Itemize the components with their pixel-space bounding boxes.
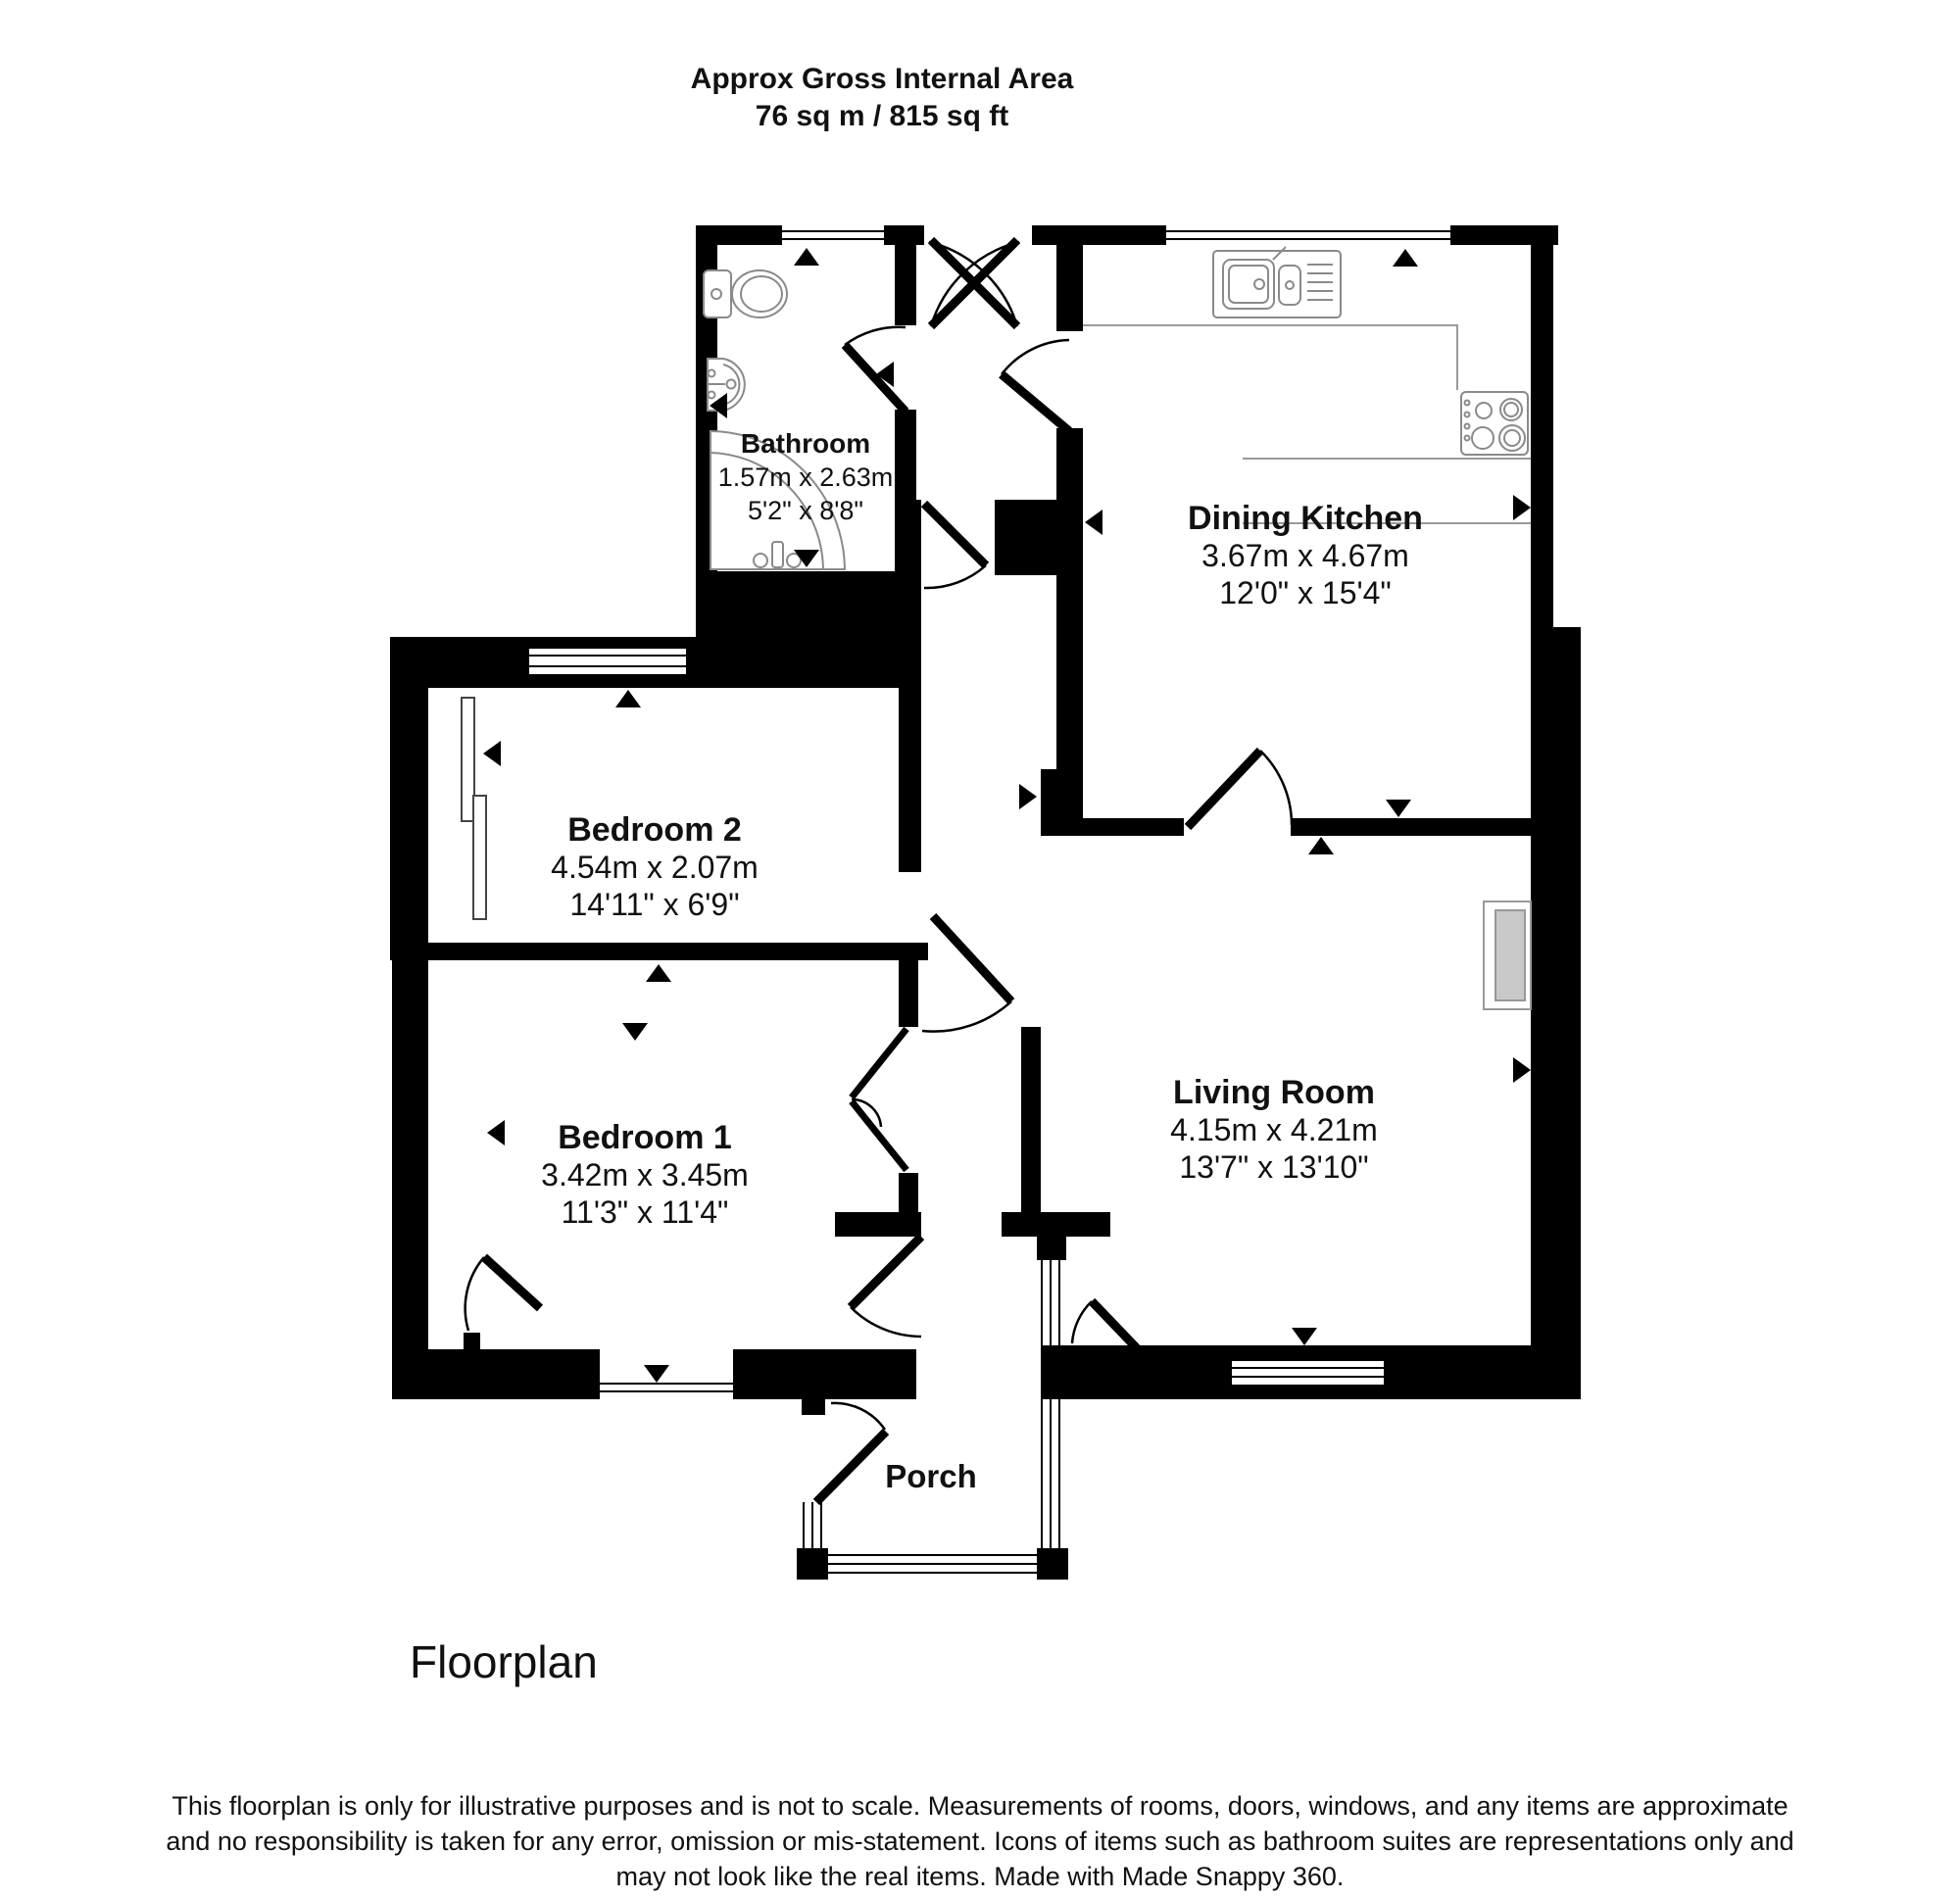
wall (995, 500, 1056, 575)
kitchen-sink-icon (1213, 247, 1341, 317)
wall (392, 1349, 600, 1399)
arrow-up-icon (794, 248, 819, 266)
door-bedroom2 (922, 916, 1011, 1032)
door-bedroom1-corner (465, 1257, 540, 1331)
disclaimer-line: and no responsibility is taken for any e… (166, 1826, 1793, 1856)
room-name: Bedroom 2 (567, 811, 742, 849)
room-dim-metric: 4.54m x 2.07m (551, 850, 759, 885)
window-bedroom2-bay (462, 698, 486, 919)
arrow-up-icon (646, 964, 671, 982)
floorplan-drawing: Approx Gross Internal Area 76 sq m / 815… (0, 0, 1960, 1899)
wall (464, 1333, 480, 1349)
page-title-line2: 76 sq m / 815 sq ft (756, 100, 1008, 132)
floorplan-caption: Floorplan (410, 1636, 598, 1687)
wall (899, 575, 921, 872)
arrow-left-icon (483, 741, 501, 766)
arrow-up-icon (615, 690, 641, 707)
wall (390, 943, 928, 960)
wall (797, 1548, 828, 1580)
room-dim-imperial: 14'11" x 6'9" (569, 887, 739, 922)
porch-glazing-left (804, 1502, 821, 1548)
arrow-right-icon (1019, 784, 1037, 809)
wall (392, 1254, 428, 1352)
disclaimer: This floorplan is only for illustrative … (166, 1791, 1793, 1891)
room-dim-imperial: 11'3" x 11'4" (562, 1194, 729, 1230)
toilet-icon (704, 270, 787, 317)
porch-glazing-bottom (828, 1555, 1037, 1573)
room-name: Bathroom (741, 428, 870, 459)
wall (392, 960, 428, 1254)
wall (802, 1395, 825, 1415)
room-dim-metric: 3.67m x 4.67m (1201, 538, 1409, 573)
room-dim-imperial: 12'0" x 15'4" (1219, 575, 1392, 610)
door-living-room (1188, 751, 1292, 827)
walls (390, 225, 1581, 1580)
door-hallway (924, 504, 986, 588)
wall (1056, 245, 1083, 331)
wall (1083, 818, 1184, 836)
arrow-left-icon (1085, 510, 1102, 535)
arrow-down-icon (622, 1023, 648, 1041)
door-porch-outer-right (1072, 1301, 1137, 1348)
room-dim-metric: 4.15m x 4.21m (1170, 1112, 1378, 1147)
arrow-right-icon (1513, 1057, 1531, 1083)
wall (1291, 818, 1531, 836)
door-front-entrance (929, 240, 1019, 326)
room-dim-metric: 1.57m x 2.63m (718, 463, 894, 492)
room-dim-imperial: 5'2" x 8'8" (748, 496, 863, 525)
arrow-down-icon (1386, 800, 1411, 817)
door-bedroom1-bifold (852, 1029, 906, 1170)
wall (895, 245, 916, 325)
wall (1041, 769, 1083, 836)
disclaimer-line: This floorplan is only for illustrative … (171, 1791, 1788, 1821)
room-name: Living Room (1173, 1074, 1375, 1111)
door-bathroom (845, 327, 906, 412)
wall (899, 960, 918, 1027)
room-name: Porch (885, 1458, 977, 1494)
window-living-room (1232, 1361, 1384, 1385)
wall (1531, 627, 1581, 1345)
room-label-porch: Porch (885, 1458, 977, 1494)
fireplace-icon (1484, 901, 1531, 1009)
window-bathroom (782, 225, 884, 245)
wall (1002, 1212, 1110, 1237)
wall (895, 410, 916, 500)
wall (1531, 225, 1553, 627)
floorplan-page: Approx Gross Internal Area 76 sq m / 815… (0, 0, 1960, 1899)
page-title-line1: Approx Gross Internal Area (691, 63, 1074, 95)
wall (733, 1349, 916, 1399)
wall (835, 1212, 921, 1237)
wall (1056, 428, 1083, 769)
room-dim-imperial: 13'7" x 13'10" (1179, 1149, 1368, 1185)
arrow-left-icon (487, 1120, 505, 1145)
door-kitchen (1002, 340, 1069, 431)
wall (1037, 1548, 1068, 1580)
room-label-living-room: Living Room 4.15m x 4.21m 13'7" x 13'10" (1170, 1074, 1378, 1185)
window-bedroom1 (600, 1377, 733, 1399)
room-dim-metric: 3.42m x 3.45m (541, 1157, 749, 1193)
disclaimer-line: may not look like the real items. Made w… (616, 1862, 1345, 1891)
wall (1021, 1027, 1041, 1212)
door-porch-inner (851, 1237, 921, 1337)
room-label-bedroom2: Bedroom 2 4.54m x 2.07m 14'11" x 6'9" (551, 811, 759, 922)
hob-icon (1461, 392, 1528, 455)
window-kitchen (1166, 225, 1450, 245)
room-label-bedroom1: Bedroom 1 3.42m x 3.45m 11'3" x 11'4" (541, 1119, 749, 1230)
room-label-dining-kitchen: Dining Kitchen 3.67m x 4.67m 12'0" x 15'… (1188, 500, 1423, 610)
arrow-up-icon (1393, 249, 1418, 267)
arrow-down-icon (1292, 1328, 1317, 1345)
room-name: Bedroom 1 (558, 1119, 732, 1156)
door-porch-outer-left (816, 1403, 886, 1502)
arrow-right-icon (1513, 495, 1531, 520)
room-name: Dining Kitchen (1188, 500, 1423, 537)
window-bedroom2-top (529, 649, 686, 674)
wall (390, 637, 428, 943)
arrow-up-icon (1308, 837, 1334, 854)
